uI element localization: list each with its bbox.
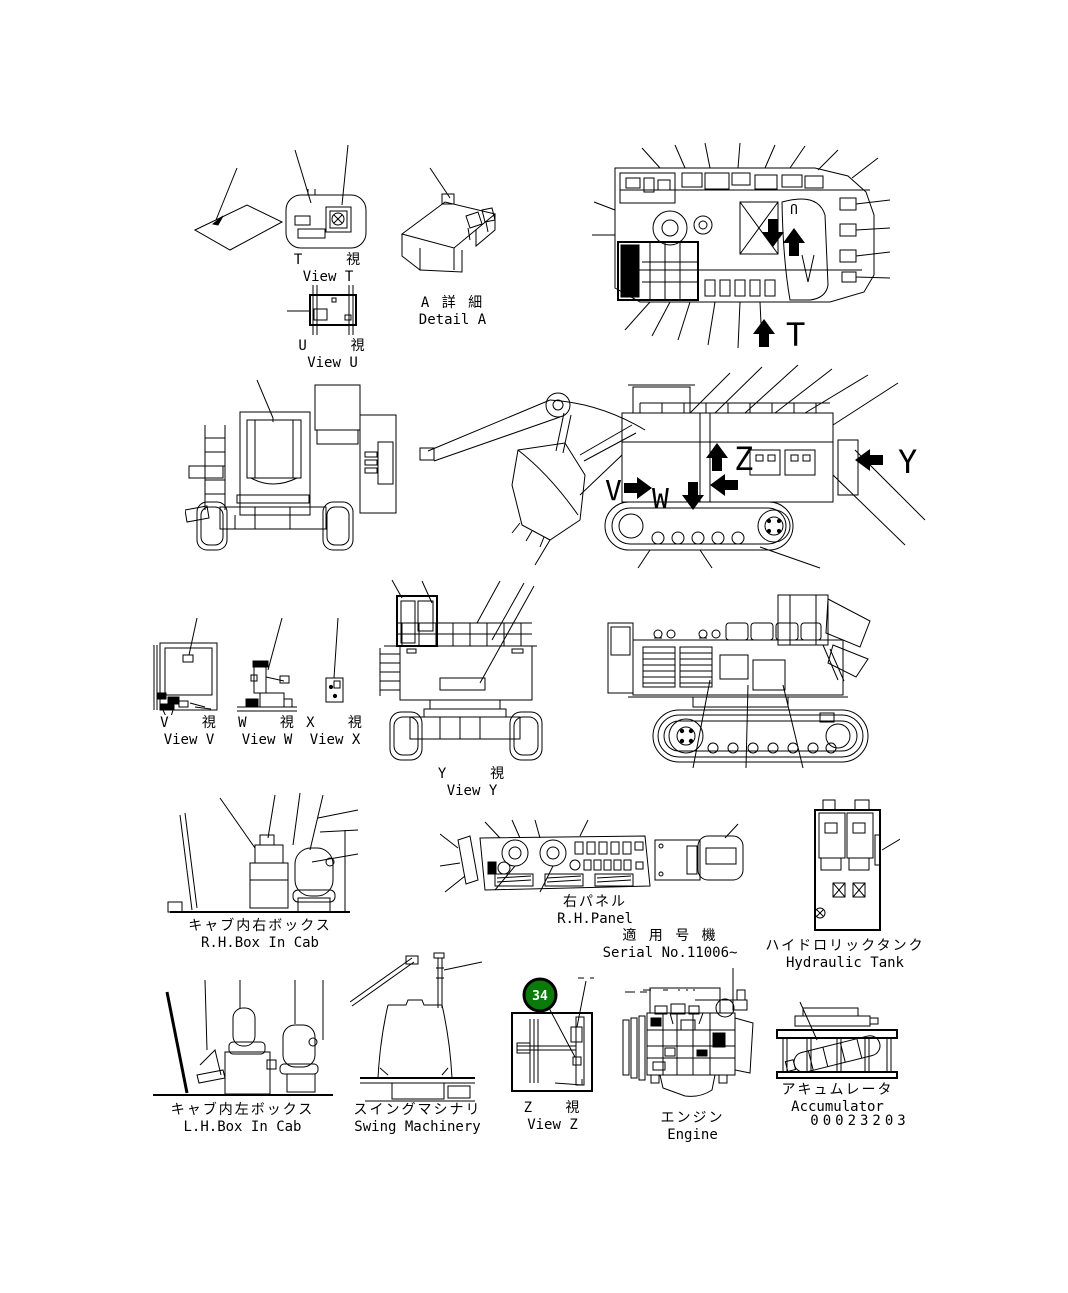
- view-t-caption-ja: T 視: [278, 252, 378, 269]
- view-x-drawing: [326, 618, 343, 702]
- fig-detail-a: A 詳 細 Detail A: [390, 160, 515, 329]
- swing-machinery-caption-en: Swing Machinery: [350, 1119, 485, 1136]
- arrow-up-icon: [753, 319, 775, 347]
- view-x-caption-ja: X 視: [305, 715, 365, 732]
- view-v-caption-ja: V 視: [145, 715, 233, 732]
- view-z-direction-letter: Z: [734, 440, 753, 478]
- view-y-caption-ja: Y 視: [372, 766, 572, 783]
- detail-a-caption-en: Detail A: [390, 312, 515, 329]
- top-view-drawing: [615, 168, 890, 302]
- engine-caption-en: Engine: [615, 1127, 770, 1144]
- lh-box-leader-lines: [205, 980, 323, 1050]
- rh-panel-drawing: [458, 836, 743, 890]
- view-v-direction-letter: V: [605, 474, 622, 507]
- view-z-caption-ja: Z 視: [500, 1100, 605, 1117]
- view-x-caption-en: View X: [305, 732, 365, 749]
- fig-rh-box-in-cab: キャブ内右ボックス R.H.Box In Cab: [160, 790, 360, 952]
- view-u-direction-letter: U: [790, 200, 798, 215]
- fig-hydraulic-tank: [795, 795, 900, 937]
- fig-front-view-machine: [185, 370, 400, 570]
- engine-caption-ja: エンジン: [615, 1110, 770, 1127]
- fig-view-x: X 視 View X: [305, 615, 365, 749]
- serial-note-en: Serial No.11006~: [575, 945, 765, 962]
- view-w-drawing: [237, 618, 297, 711]
- rh-box-drawing: [168, 813, 350, 912]
- fig-side-view-machine: V W Z Y: [400, 355, 930, 570]
- view-t-direction-letter: T: [786, 316, 805, 354]
- swing-machinery-caption-ja: スイングマシナリ: [350, 1102, 485, 1119]
- serial-note: 適 用 号 機 Serial No.11006~: [575, 928, 765, 962]
- rh-box-leader-lines: [220, 793, 358, 862]
- fig-rh-panel: 右パネル R.H.Panel: [440, 818, 750, 928]
- view-z-caption-en: View Z: [500, 1117, 605, 1134]
- engine-drawing: [623, 990, 753, 1096]
- fig-swing-machinery: スイングマシナリ Swing Machinery: [350, 950, 485, 1136]
- part-balloon-number[interactable]: 34: [532, 989, 548, 1004]
- fig-view-u: U 視 View U: [285, 283, 380, 372]
- side-view-2-drawing: [608, 595, 870, 762]
- view-v-caption-en: View V: [145, 732, 233, 749]
- view-y-direction-letter: Y: [898, 443, 917, 481]
- view-v-drawing: [154, 618, 217, 715]
- rh-box-caption-en: R.H.Box In Cab: [160, 935, 360, 952]
- arrow-down-icon: [682, 482, 704, 510]
- rh-panel-leader-lines: [440, 820, 738, 892]
- arrow-up-icon: [706, 443, 728, 471]
- detail-a-caption-ja: A 詳 細: [390, 295, 515, 312]
- fig-side-view-machine-2: [598, 585, 873, 770]
- side-view-drawing: [420, 385, 858, 550]
- fig-accumulator: アキュムレータ Accumulator: [765, 1000, 910, 1116]
- accumulator-drawing: [777, 1002, 897, 1078]
- view-y-caption-en: View Y: [372, 783, 572, 800]
- fig-view-t: T 視 View T: [278, 145, 378, 286]
- arrow-left-icon: [855, 449, 883, 471]
- arrow-down-icon: [762, 219, 784, 247]
- fig-lh-box-in-cab: キャブ内左ボックス L.H.Box In Cab: [145, 980, 340, 1136]
- view-t-drawing: [286, 145, 366, 248]
- rh-box-caption-ja: キャブ内右ボックス: [160, 918, 360, 935]
- fig-view-z: 34 Z 視 View Z: [500, 975, 605, 1134]
- lh-box-drawing: [153, 992, 333, 1095]
- hydraulic-tank-caption: ハイドロリックタンク Hydraulic Tank: [755, 938, 935, 972]
- lh-box-caption-ja: キャブ内左ボックス: [145, 1102, 340, 1119]
- view-w-direction-letter: W: [652, 482, 669, 515]
- arrow-right-icon: [624, 477, 652, 499]
- rh-panel-caption-en: R.H.Panel: [440, 911, 750, 928]
- view-y-drawing: [380, 596, 542, 760]
- detail-a-drawing: [402, 168, 495, 272]
- view-w-caption-ja: W 視: [232, 715, 302, 732]
- fig-view-w: W 視 View W: [232, 615, 302, 749]
- fig-view-v: V 視 View V: [145, 615, 233, 749]
- page-canvas: T 視 View T U 視 View U: [0, 0, 1068, 1293]
- serial-note-ja: 適 用 号 機: [575, 928, 765, 945]
- lh-box-caption-en: L.H.Box In Cab: [145, 1119, 340, 1136]
- view-w-caption-en: View W: [232, 732, 302, 749]
- hydraulic-tank-caption-en: Hydraulic Tank: [755, 955, 935, 972]
- plate-drawing: [195, 168, 282, 250]
- swing-machinery-drawing: [350, 953, 482, 1101]
- hydraulic-tank-drawing: [815, 800, 900, 930]
- view-u-drawing: [287, 285, 356, 335]
- arrow-up-icon: [783, 228, 805, 256]
- hydraulic-tank-caption-ja: ハイドロリックタンク: [755, 938, 935, 955]
- accumulator-caption-ja: アキュムレータ: [765, 1082, 910, 1099]
- front-view-drawing: [185, 380, 396, 550]
- fig-engine: エンジン Engine: [615, 978, 770, 1144]
- rh-panel-caption-ja: 右パネル: [440, 894, 750, 911]
- fig-view-y: Y 視 View Y: [372, 578, 572, 800]
- view-u-caption-ja: U 視: [285, 338, 380, 355]
- fig-top-view-machine: U T: [590, 140, 910, 360]
- drawing-number: 00023203: [790, 1113, 930, 1129]
- side-view-2-leader-lines: [693, 680, 803, 768]
